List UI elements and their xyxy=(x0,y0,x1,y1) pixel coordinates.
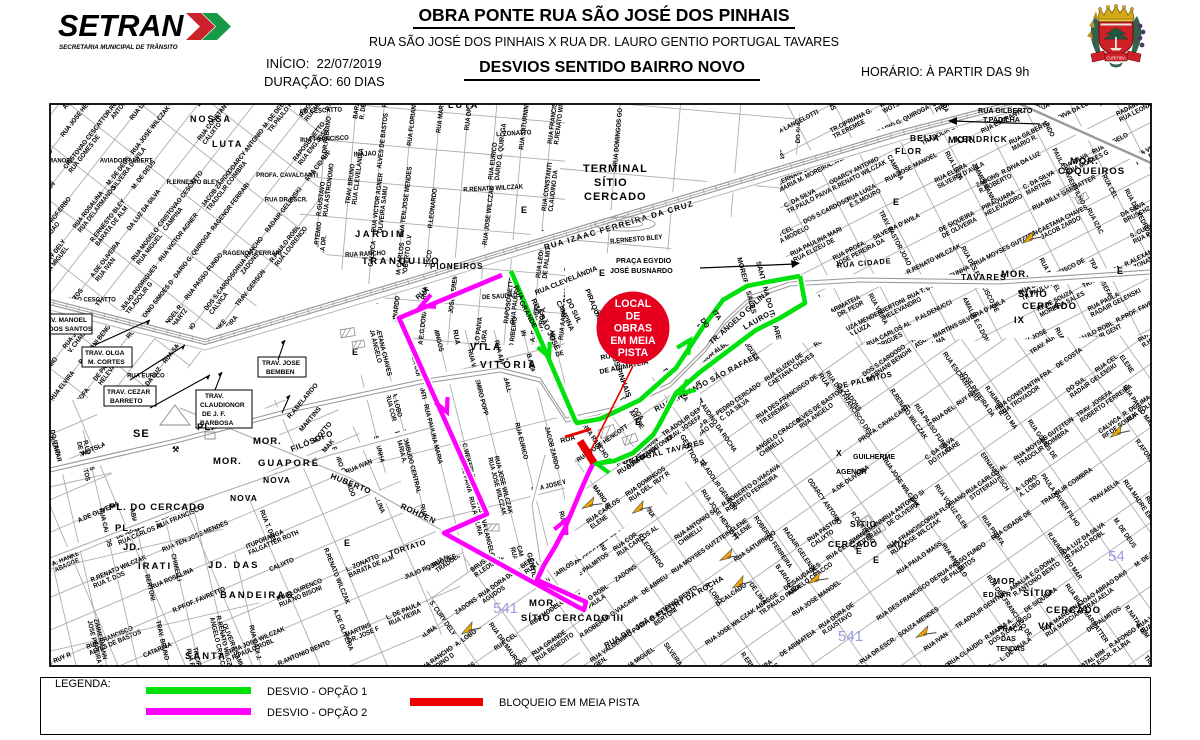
svg-text:TRAV.AELIA: TRAV.AELIA xyxy=(304,261,324,296)
svg-text:R.PREF. RUBENS: R.PREF. RUBENS xyxy=(807,65,837,113)
svg-text:RUA NO BISONI: RUA NO BISONI xyxy=(669,224,701,266)
svg-text:INAJAO: INAJAO xyxy=(587,381,610,390)
svg-text:HELEVANDRO: HELEVANDRO xyxy=(56,70,87,107)
svg-text:TRAV. GERSON: TRAV. GERSON xyxy=(1031,0,1074,6)
svg-text:R.DR.FABIANO: R.DR.FABIANO xyxy=(530,44,543,88)
svg-text:RUA SATURNINO: RUA SATURNINO xyxy=(518,100,531,150)
svg-text:RUA MARCIANA: RUA MARCIANA xyxy=(435,86,448,134)
svg-text:RADAIR GELENSKI: RADAIR GELENSKI xyxy=(129,0,169,25)
svg-text:SE: SE xyxy=(133,428,150,440)
svg-text:RUA NO BISONI: RUA NO BISONI xyxy=(232,380,278,387)
svg-text:PIONEIROS: PIONEIROS xyxy=(430,262,483,271)
svg-text:VII: VII xyxy=(1038,621,1053,632)
svg-text:M. DE DEUS: M. DE DEUS xyxy=(1111,517,1137,550)
svg-text:ANTONIO COSTA: ANTONIO COSTA xyxy=(110,77,147,121)
svg-text:L. DE PAULA: L. DE PAULA xyxy=(670,239,705,267)
svg-text:DO ITARARE: DO ITARARE xyxy=(506,0,518,38)
svg-text:RUA GILBERTO: RUA GILBERTO xyxy=(1168,97,1200,124)
svg-text:C. DA SILVA: C. DA SILVA xyxy=(914,38,947,64)
svg-text:R.ANTONIO BENTO: R.ANTONIO BENTO xyxy=(277,639,331,668)
svg-text:R.ERNESTO BLEY: R.ERNESTO BLEY xyxy=(1188,238,1200,269)
svg-text:RUA ENG.WALDEMAR: RUA ENG.WALDEMAR xyxy=(177,41,223,96)
svg-text:BEMBEN: BEMBEN xyxy=(266,369,295,376)
svg-text:R.LEONARDO: R.LEONARDO xyxy=(636,533,665,570)
svg-text:TR.MANOE: TR.MANOE xyxy=(0,366,24,396)
svg-text:ZIMMERMANN: ZIMMERMANN xyxy=(413,235,454,258)
svg-text:ALVES DE BASTOS: ALVES DE BASTOS xyxy=(376,112,390,169)
svg-text:R.CERTEMIO: R.CERTEMIO xyxy=(448,33,486,42)
svg-text:TRAV. GERSON: TRAV. GERSON xyxy=(207,378,252,385)
svg-text:TRAV. MANOEL: TRAV. MANOEL xyxy=(38,317,87,324)
svg-text:RUA JOAO: RUA JOAO xyxy=(1079,12,1110,33)
svg-text:RUA PEDRO: RUA PEDRO xyxy=(636,56,648,92)
svg-text:JARDIM: JARDIM xyxy=(355,229,406,240)
svg-text:O. DOS SANTOS: O. DOS SANTOS xyxy=(40,326,93,333)
svg-text:DE MACEDO: DE MACEDO xyxy=(579,374,613,401)
svg-text:RUA DES.FRANCISCO DE: RUA DES.FRANCISCO DE xyxy=(381,33,397,108)
svg-text:S.CUNHA: S.CUNHA xyxy=(30,54,53,80)
svg-text:DE ABREU: DE ABREU xyxy=(940,66,964,96)
svg-text:JACOB ZARDO: JACOB ZARDO xyxy=(1175,472,1200,512)
svg-text:JD.: JD. xyxy=(123,542,141,553)
svg-text:S.CUNHA: S.CUNHA xyxy=(574,126,585,154)
svg-text:D.CALCADO: D.CALCADO xyxy=(676,230,710,257)
svg-text:RUA GRANDE: RUA GRANDE xyxy=(652,96,692,121)
svg-text:R.NATAL BIM: R.NATAL BIM xyxy=(784,444,821,468)
svg-text:OBRAS: OBRAS xyxy=(614,323,652,335)
svg-text:RODRIGUES: RODRIGUES xyxy=(1192,159,1200,182)
svg-text:DOS S.CARDOSO: DOS S.CARDOSO xyxy=(557,80,608,90)
svg-text:BERTONI: BERTONI xyxy=(331,411,357,433)
svg-text:DE SIQUEIRA: DE SIQUEIRA xyxy=(584,359,601,399)
svg-text:RUA TEN.CEL MASS: RUA TEN.CEL MASS xyxy=(787,440,843,474)
svg-text:TRAV. LUZ MOSRO: TRAV. LUZ MOSRO xyxy=(680,225,729,262)
svg-text:DE MACEDO: DE MACEDO xyxy=(972,426,1008,449)
svg-text:TRAV. JOSEFA: TRAV. JOSEFA xyxy=(34,503,51,546)
svg-text:ANGELO CRACCO: ANGELO CRACCO xyxy=(768,58,816,95)
svg-text:SOUZA MENDES: SOUZA MENDES xyxy=(897,605,941,639)
svg-text:R.PROF. FAVRETTO: R.PROF. FAVRETTO xyxy=(172,586,227,615)
svg-text:RUA JOSE MANOEL: RUA JOSE MANOEL xyxy=(818,56,873,89)
svg-text:AGUDOS: AGUDOS xyxy=(1100,0,1119,20)
svg-text:RUA TEN.CEL MASS: RUA TEN.CEL MASS xyxy=(1082,5,1138,39)
svg-text:TRAV. OLGA: TRAV. OLGA xyxy=(85,350,125,357)
svg-text:RUA ELVIRA: RUA ELVIRA xyxy=(100,0,128,15)
svg-text:RUA IZAC: RUA IZAC xyxy=(445,68,474,77)
svg-text:MOR.: MOR. xyxy=(993,576,1019,586)
svg-text:RUA MIGUEL: RUA MIGUEL xyxy=(0,175,12,182)
svg-text:TRADOLIR COIMBRA: TRADOLIR COIMBRA xyxy=(818,56,859,111)
svg-text:R.LEONARDO: R.LEONARDO xyxy=(325,70,337,111)
svg-text:RUA CLEVELANDIA: RUA CLEVELANDIA xyxy=(274,0,288,48)
svg-text:BRUSCHZ OURIZONA: BRUSCHZ OURIZONA xyxy=(678,123,734,165)
svg-text:TRAV. JOSEFA: TRAV. JOSEFA xyxy=(853,0,892,12)
svg-text:RUA AVELINA: RUA AVELINA xyxy=(151,0,182,21)
svg-text:BANDEIRAS: BANDEIRAS xyxy=(220,590,294,601)
svg-text:RUA GOMES DE: RUA GOMES DE xyxy=(1137,311,1180,344)
svg-text:CAETANA CHAVES: CAETANA CHAVES xyxy=(1176,191,1200,223)
svg-text:MOR.: MOR. xyxy=(529,598,558,609)
svg-text:C.WEKERLIN: C.WEKERLIN xyxy=(892,1,929,25)
svg-text:RUA OADI J.: RUA OADI J. xyxy=(949,5,983,32)
svg-text:RUA IVAN: RUA IVAN xyxy=(500,8,511,37)
svg-text:MARQUESIDA VAZ: MARQUESIDA VAZ xyxy=(357,9,371,63)
svg-text:R.CERTEMIO: R.CERTEMIO xyxy=(31,356,60,390)
svg-text:TR.ADOLIR GENTIOR: TR.ADOLIR GENTIOR xyxy=(193,376,255,387)
svg-text:BERTONI: BERTONI xyxy=(576,374,602,396)
svg-text:TR.ADOLIR GENTIOR: TR.ADOLIR GENTIOR xyxy=(1170,508,1200,563)
svg-text:TR.PAULO PAIVA: TR.PAULO PAIVA xyxy=(1171,326,1200,360)
svg-text:RUA BILLY GARMATTER: RUA BILLY GARMATTER xyxy=(1178,682,1200,729)
svg-text:RUA OADI J.: RUA OADI J. xyxy=(725,98,759,125)
svg-text:RUA JOSE WILCZAK: RUA JOSE WILCZAK xyxy=(482,185,497,245)
svg-text:RUA FLORIANO: RUA FLORIANO xyxy=(406,100,419,146)
svg-text:RUA SATURNINO: RUA SATURNINO xyxy=(259,0,295,36)
svg-text:TR.MANOE: TR.MANOE xyxy=(1191,368,1200,389)
svg-text:RUA TEN.JOSE MENDES: RUA TEN.JOSE MENDES xyxy=(398,166,414,238)
svg-text:PEDRO CERCADO: PEDRO CERCADO xyxy=(786,15,823,63)
svg-text:CAETANA CHAVES: CAETANA CHAVES xyxy=(424,124,464,172)
svg-text:RUA IVAN: RUA IVAN xyxy=(613,76,642,85)
svg-text:RUA CIDADE: RUA CIDADE xyxy=(729,190,764,218)
svg-text:DOS S.CARDOSO: DOS S.CARDOSO xyxy=(1034,0,1083,12)
svg-text:R.ERNESTO BLEY: R.ERNESTO BLEY xyxy=(610,234,663,246)
svg-text:INAJAO: INAJAO xyxy=(354,150,377,159)
svg-text:RADAIR GELENSKI: RADAIR GELENSKI xyxy=(997,63,1047,101)
svg-text:L. ZONATTO: L. ZONATTO xyxy=(0,515,10,536)
svg-text:JACOB ZARDO: JACOB ZARDO xyxy=(578,62,591,106)
svg-text:DE COSTA: DE COSTA xyxy=(760,33,784,62)
svg-text:E: E xyxy=(344,538,350,548)
svg-text:TRADOLIR COIMBRA: TRADOLIR COIMBRA xyxy=(1026,0,1061,10)
svg-text:DE PALMITOS: DE PALMITOS xyxy=(1133,65,1173,90)
svg-text:RUA MADRE EMILA: RUA MADRE EMILA xyxy=(1121,478,1160,529)
svg-text:RUA IVAN: RUA IVAN xyxy=(345,458,374,476)
svg-text:R.LOREAS: R.LOREAS xyxy=(652,82,683,103)
svg-text:MOR.: MOR. xyxy=(213,456,242,467)
svg-text:RUA DES.FRANCISCO DE: RUA DES.FRANCISCO DE xyxy=(12,407,36,481)
svg-text:DE J. F.: DE J. F. xyxy=(202,411,226,418)
svg-text:RUA ANTONIO: RUA ANTONIO xyxy=(1143,27,1183,53)
svg-text:ROBERTO FERREIRA: ROBERTO FERREIRA xyxy=(1167,408,1200,450)
svg-text:JACOB ZARDO: JACOB ZARDO xyxy=(505,38,516,82)
svg-text:PEDRO CERCADO: PEDRO CERCADO xyxy=(885,50,936,81)
svg-text:GUILHERME: GUILHERME xyxy=(853,454,895,461)
svg-text:NOVA: NOVA xyxy=(230,493,258,503)
svg-text:JOAO ABRAO DAVI: JOAO ABRAO DAVI xyxy=(1079,569,1129,607)
svg-text:E: E xyxy=(856,546,863,556)
svg-text:541: 541 xyxy=(838,628,863,645)
svg-text:E.S.MOURO: E.S.MOURO xyxy=(1095,80,1129,102)
svg-text:WOTSLAVA LANGELOTTI: WOTSLAVA LANGELOTTI xyxy=(752,109,820,149)
svg-text:RUA SAO JOSE: RUA SAO JOSE xyxy=(423,0,436,27)
svg-text:PL.: PL. xyxy=(115,523,133,534)
svg-text:RUA ENG. EDLAR: RUA ENG. EDLAR xyxy=(204,346,254,373)
svg-text:DR. JOSE FERREIRA: DR. JOSE FERREIRA xyxy=(800,12,857,46)
svg-text:RUA ENG.JOSE: RUA ENG.JOSE xyxy=(937,50,965,94)
svg-text:RUA LUIZA: RUA LUIZA xyxy=(728,106,759,131)
svg-text:A.DE OLIVEIRA: A.DE OLIVEIRA xyxy=(1146,31,1189,58)
svg-text:CLAUDIONOR: CLAUDIONOR xyxy=(200,402,245,409)
svg-text:R.CERTEMIO: R.CERTEMIO xyxy=(1171,228,1200,252)
svg-text:RUA ELVIRA: RUA ELVIRA xyxy=(4,284,32,317)
svg-text:PROFA. CAVALCANTI: PROFA. CAVALCANTI xyxy=(0,225,22,278)
svg-text:TRAV. LUZ MOSRO: TRAV. LUZ MOSRO xyxy=(159,0,198,47)
svg-text:RUA VALDEMIRO POPP: RUA VALDEMIRO POPP xyxy=(739,65,804,103)
svg-text:RUA VOLUZ ELEN: RUA VOLUZ ELEN xyxy=(864,9,895,59)
svg-text:MARQUESIDA VAZ: MARQUESIDA VAZ xyxy=(363,9,377,63)
svg-text:RUA CONSTANTIN FRA: RUA CONSTANTIN FRA xyxy=(994,368,1053,413)
svg-text:CALIXTO: CALIXTO xyxy=(268,557,295,574)
svg-text:RUA NO BISONI: RUA NO BISONI xyxy=(0,167,11,208)
svg-text:DE ABREU: DE ABREU xyxy=(1016,19,1047,40)
svg-text:DE: DE xyxy=(626,310,641,322)
svg-text:SÍTIO: SÍTIO xyxy=(594,176,628,189)
svg-text:TR.MANOE: TR.MANOE xyxy=(533,735,564,740)
svg-text:TRAV. JOSE: TRAV. JOSE xyxy=(262,360,301,367)
svg-text:CHIMELLI: CHIMELLI xyxy=(251,31,262,60)
svg-text:ZADONS: ZADONS xyxy=(454,596,479,617)
svg-text:RUA ALDA SILVA: RUA ALDA SILVA xyxy=(885,10,930,44)
svg-text:RUA TEN.JOSE MENDES: RUA TEN.JOSE MENDES xyxy=(955,0,1022,19)
svg-text:M. DE DEUS: M. DE DEUS xyxy=(772,74,805,100)
svg-text:AVIADOR ALBER: AVIADOR ALBER xyxy=(1113,38,1143,85)
svg-text:EM MEIA: EM MEIA xyxy=(610,335,656,347)
svg-text:HELEVANDRO: HELEVANDRO xyxy=(4,76,35,113)
svg-text:DE ARIMATEIA: DE ARIMATEIA xyxy=(1151,177,1193,203)
svg-text:RUA PAULO MASS: RUA PAULO MASS xyxy=(524,32,538,87)
svg-text:ROBERTO FERREIRA: ROBERTO FERREIRA xyxy=(724,31,783,66)
svg-text:AGUDOS: AGUDOS xyxy=(1192,570,1200,592)
svg-text:SILVEIRA D'AVILA: SILVEIRA D'AVILA xyxy=(216,0,254,46)
svg-text:JOSÉ BUSNARDO: JOSÉ BUSNARDO xyxy=(610,266,673,275)
svg-text:ELENE: ELENE xyxy=(1118,354,1136,375)
svg-text:RUA LEONARDO: RUA LEONARDO xyxy=(577,361,596,410)
svg-text:TRAV. JOSE: TRAV. JOSE xyxy=(803,16,813,52)
svg-text:R.MARIA A.: R.MARIA A. xyxy=(0,181,9,212)
svg-text:RUA EURICO: RUA EURICO xyxy=(513,422,529,460)
svg-text:X: X xyxy=(836,448,843,458)
svg-text:RUA DR. MAURO: RUA DR. MAURO xyxy=(657,146,701,180)
svg-text:RUA ESCRANTONIO: RUA ESCRANTONIO xyxy=(1130,52,1185,85)
svg-text:R.DIVA DA LUZ: R.DIVA DA LUZ xyxy=(1000,150,1042,176)
svg-text:RUA CLAUDIO: RUA CLAUDIO xyxy=(947,638,985,668)
svg-text:RUA ELIZEU DE: RUA ELIZEU DE xyxy=(462,403,495,445)
svg-text:S.CUNHA: S.CUNHA xyxy=(1172,679,1199,701)
svg-text:RUA IVAN: RUA IVAN xyxy=(1070,0,1099,12)
svg-text:L. ZONATTO: L. ZONATTO xyxy=(707,79,740,105)
svg-text:VITÓRIA: VITÓRIA xyxy=(480,358,538,371)
svg-text:TENDAS: TENDAS xyxy=(996,646,1025,653)
svg-text:RUA NO BISONI: RUA NO BISONI xyxy=(813,317,855,349)
svg-text:RUA CARLOS: RUA CARLOS xyxy=(0,187,24,223)
svg-text:RUA FRANCISCO: RUA FRANCISCO xyxy=(300,365,350,372)
svg-text:BARATA DE ALM: BARATA DE ALM xyxy=(0,308,37,334)
svg-text:R.ANTONIO BENTO: R.ANTONIO BENTO xyxy=(272,80,328,87)
svg-text:RUA ENG. EDLAR: RUA ENG. EDLAR xyxy=(717,118,766,148)
svg-text:PRAÇA EGYDIO: PRAÇA EGYDIO xyxy=(616,256,672,265)
svg-text:RUA LEONARDO: RUA LEONARDO xyxy=(744,0,791,23)
svg-text:R.ALEXANDRINO: R.ALEXANDRINO xyxy=(445,381,480,426)
svg-text:DE ABREU: DE ABREU xyxy=(669,118,700,139)
svg-text:LUTA: LUTA xyxy=(448,100,479,110)
svg-text:NOVA: NOVA xyxy=(263,475,291,485)
svg-text:BEIJA: BEIJA xyxy=(910,133,940,143)
svg-text:R.AFONSO: R.AFONSO xyxy=(383,467,413,491)
svg-text:DOS S.CARDOSO: DOS S.CARDOSO xyxy=(938,0,984,7)
svg-text:CAMPINA: CAMPINA xyxy=(218,526,241,553)
svg-text:XIII: XIII xyxy=(891,539,908,549)
svg-text:R.MARIA A.: R.MARIA A. xyxy=(0,459,10,492)
svg-text:RUA DR. MAURO: RUA DR. MAURO xyxy=(964,18,1008,52)
svg-text:P.ALDENUCCI: P.ALDENUCCI xyxy=(714,117,753,142)
svg-text:ERNANI PESCH: ERNANI PESCH xyxy=(262,57,307,64)
svg-text:C. DA SILVA: C. DA SILVA xyxy=(331,326,343,361)
svg-text:CALIXTO: CALIXTO xyxy=(1182,117,1200,135)
svg-text:SILVEIRA D'AVILA: SILVEIRA D'AVILA xyxy=(797,39,833,86)
svg-text:RUA JOAO: RUA JOAO xyxy=(878,57,908,81)
svg-text:DE PALMITOS: DE PALMITOS xyxy=(573,551,611,581)
svg-text:PRAÇA: PRAÇA xyxy=(998,626,1023,633)
svg-text:WALDOMIRO BILESKI: WALDOMIRO BILESKI xyxy=(254,0,299,32)
svg-text:DAS: DAS xyxy=(1001,636,1016,643)
svg-text:DE PALMITOS: DE PALMITOS xyxy=(202,0,233,27)
svg-text:RUA SAO JOSE: RUA SAO JOSE xyxy=(701,147,745,174)
svg-text:R.RENATO WILCZAK: R.RENATO WILCZAK xyxy=(322,547,351,606)
svg-text:RUA IVAN: RUA IVAN xyxy=(1154,189,1183,209)
svg-text:JOSE PEREIRA DA: JOSE PEREIRA DA xyxy=(1128,364,1180,395)
svg-text:RUA DORA DE: RUA DORA DE xyxy=(79,14,111,52)
svg-text:SILVEIRA D'AVILA: SILVEIRA D'AVILA xyxy=(853,0,884,39)
svg-text:RUA PEDRO: RUA PEDRO xyxy=(974,51,1007,78)
svg-text:TRAV.AELIA: TRAV.AELIA xyxy=(996,53,1031,76)
svg-text:RUA MIGUEL: RUA MIGUEL xyxy=(1195,569,1200,597)
svg-text:CAETANA CHAVES: CAETANA CHAVES xyxy=(2,93,42,141)
svg-text:SANTA: SANTA xyxy=(185,651,227,662)
svg-text:CERCADO: CERCADO xyxy=(1046,605,1101,616)
svg-text:TR.CIPRIANA G.: TR.CIPRIANA G. xyxy=(889,17,931,50)
svg-text:SÍTIO CERCADO III: SÍTIO CERCADO III xyxy=(521,613,624,624)
svg-text:RUA MOYSES GUTZTEIN: RUA MOYSES GUTZTEIN xyxy=(649,58,716,97)
svg-text:MOR.: MOR. xyxy=(253,436,282,447)
svg-text:L. ZONATTO: L. ZONATTO xyxy=(1113,0,1148,23)
svg-text:MARIA M. MOREIRA: MARIA M. MOREIRA xyxy=(1110,0,1165,17)
svg-text:RODRIGUES: RODRIGUES xyxy=(803,29,839,52)
svg-text:M. DE DEUS: M. DE DEUS xyxy=(569,172,581,208)
svg-text:VILA: VILA xyxy=(470,342,503,353)
svg-text:R.HUMBERTO M: R.HUMBERTO M xyxy=(787,0,832,1)
svg-text:R.PROF. FAVRETTO: R.PROF. FAVRETTO xyxy=(1165,381,1200,420)
svg-text:RUA ALDA SILVA: RUA ALDA SILVA xyxy=(1195,159,1200,188)
svg-text:R.LEONARDO: R.LEONARDO xyxy=(427,188,439,229)
svg-text:PEDRO CERCADO: PEDRO CERCADO xyxy=(715,381,763,418)
svg-text:RUA ESCRANTONIO: RUA ESCRANTONIO xyxy=(895,0,950,31)
svg-text:RUA DOMINGOS: RUA DOMINGOS xyxy=(426,305,445,354)
svg-text:RUA TROVADOR: RUA TROVADOR xyxy=(1165,90,1200,119)
svg-text:RUA OADI J.: RUA OADI J. xyxy=(25,43,53,76)
svg-text:RUA DEL. RUY R: RUA DEL. RUY R xyxy=(416,0,429,27)
svg-text:RUA RANCHO: RUA RANCHO xyxy=(0,191,29,228)
svg-text:R.DR.FABIANO: R.DR.FABIANO xyxy=(910,28,950,59)
svg-text:RUA ROSALINA: RUA ROSALINA xyxy=(604,93,648,120)
svg-text:LUTA: LUTA xyxy=(212,139,243,149)
svg-text:MARIO R.: MARIO R. xyxy=(857,39,877,67)
svg-text:JOSE PEREIRA DA: JOSE PEREIRA DA xyxy=(0,567,41,595)
svg-text:C.WEKERLIN: C.WEKERLIN xyxy=(28,180,57,215)
svg-text:E: E xyxy=(635,417,641,427)
svg-text:A. RICHARTZ: A. RICHARTZ xyxy=(29,606,50,644)
svg-text:R.CERTEMIO: R.CERTEMIO xyxy=(249,0,261,10)
svg-text:RUA NO BISONI: RUA NO BISONI xyxy=(625,276,671,294)
svg-text:COQUEIROS: COQUEIROS xyxy=(1058,166,1125,177)
svg-text:OLIVEIRA SAMU: OLIVEIRA SAMU xyxy=(723,211,752,256)
svg-text:RUA DR.ESCR.: RUA DR.ESCR. xyxy=(985,25,1012,67)
svg-text:IX: IX xyxy=(1014,315,1025,326)
svg-text:P.ALDENUCCI: P.ALDENUCCI xyxy=(742,84,781,109)
svg-text:EDLAR: EDLAR xyxy=(983,592,1012,599)
svg-text:ALVES DE BASTOS: ALVES DE BASTOS xyxy=(821,62,875,94)
svg-text:CERCADO: CERCADO xyxy=(1022,301,1077,312)
svg-text:TR.GIANFRANCO: TR.GIANFRANCO xyxy=(292,47,329,91)
svg-text:RUA PROFA.: RUA PROFA. xyxy=(838,82,872,109)
svg-text:RUA MOYSES GUTZTEIN: RUA MOYSES GUTZTEIN xyxy=(1013,416,1076,463)
svg-text:FALGATTER ROTH: FALGATTER ROTH xyxy=(1185,599,1200,636)
svg-text:RUA DR.ESCR.: RUA DR.ESCR. xyxy=(858,635,898,666)
svg-text:BARATA DE ALM: BARATA DE ALM xyxy=(315,365,362,391)
svg-text:CATARINA: CATARINA xyxy=(1167,331,1196,355)
svg-text:RUA PASSO FUNDO: RUA PASSO FUNDO xyxy=(208,0,249,31)
svg-text:RUA GILBERTO: RUA GILBERTO xyxy=(978,106,1033,115)
svg-text:RUA DOMINGOS GO: RUA DOMINGOS GO xyxy=(612,108,625,167)
svg-text:RUA JOSE WILCZAK: RUA JOSE WILCZAK xyxy=(468,14,483,74)
svg-text:TRAV.AELIA: TRAV.AELIA xyxy=(729,55,755,88)
svg-text:DE COSTA: DE COSTA xyxy=(494,395,505,426)
svg-text:TRAV. CEZAR: TRAV. CEZAR xyxy=(107,389,150,396)
svg-text:RUA DR. PEDRO DA: RUA DR. PEDRO DA xyxy=(881,47,933,86)
svg-text:541: 541 xyxy=(493,600,518,617)
svg-text:RUA JOSE WILCZAK: RUA JOSE WILCZAK xyxy=(704,607,757,647)
svg-text:CALVICA: CALVICA xyxy=(1038,397,1065,416)
svg-text:RUA ROSALINA: RUA ROSALINA xyxy=(397,624,439,656)
svg-text:AMALIA E.G.DONA: AMALIA E.G.DONA xyxy=(1,248,40,296)
svg-text:R. DE LIMA: R. DE LIMA xyxy=(1039,50,1061,82)
svg-text:CRISTOVAO CESCATTO: CRISTOVAO CESCATTO xyxy=(666,215,727,261)
svg-text:TR.CIPRIANA G.: TR.CIPRIANA G. xyxy=(1186,131,1200,159)
svg-text:RUA DEL. RUY R: RUA DEL. RUY R xyxy=(1179,289,1200,318)
svg-text:RUA PAULA: RUA PAULA xyxy=(26,160,53,192)
svg-text:R.MANOEL R.: R.MANOEL R. xyxy=(1166,346,1191,384)
svg-text:DE ARIMATEIA: DE ARIMATEIA xyxy=(1090,735,1129,740)
svg-text:R.JOAO D.: R.JOAO D. xyxy=(1078,56,1099,87)
svg-text:PISTA: PISTA xyxy=(618,347,649,359)
svg-text:RF.DE SOUZA: RF.DE SOUZA xyxy=(587,51,627,61)
svg-text:RUA ENG.JOSE: RUA ENG.JOSE xyxy=(714,735,756,740)
svg-text:TRAV.: TRAV. xyxy=(205,393,224,400)
svg-text:ZYTKIEVITZ: ZYTKIEVITZ xyxy=(495,55,507,90)
svg-text:R. DE LIMA: R. DE LIMA xyxy=(835,412,857,444)
svg-text:CAMPINA: CAMPINA xyxy=(1181,608,1200,630)
svg-text:RUA ELIZEU DE: RUA ELIZEU DE xyxy=(124,0,158,21)
svg-text:GUAPORÉ: GUAPORÉ xyxy=(258,458,320,469)
svg-text:RUA DR. PEDR: RUA DR. PEDR xyxy=(167,45,199,84)
svg-text:CAMPINA: CAMPINA xyxy=(683,153,703,181)
svg-text:BERTONI: BERTONI xyxy=(143,574,156,602)
svg-text:RUA MIGUEL: RUA MIGUEL xyxy=(621,646,656,674)
svg-text:RUA CARLOS AL: RUA CARLOS AL xyxy=(865,320,912,349)
svg-text:BRUSCHZ OURIZONA: BRUSCHZ OURIZONA xyxy=(221,0,266,50)
svg-text:CALVICA: CALVICA xyxy=(656,88,682,109)
svg-text:RUA COR: RUA COR xyxy=(832,0,854,10)
